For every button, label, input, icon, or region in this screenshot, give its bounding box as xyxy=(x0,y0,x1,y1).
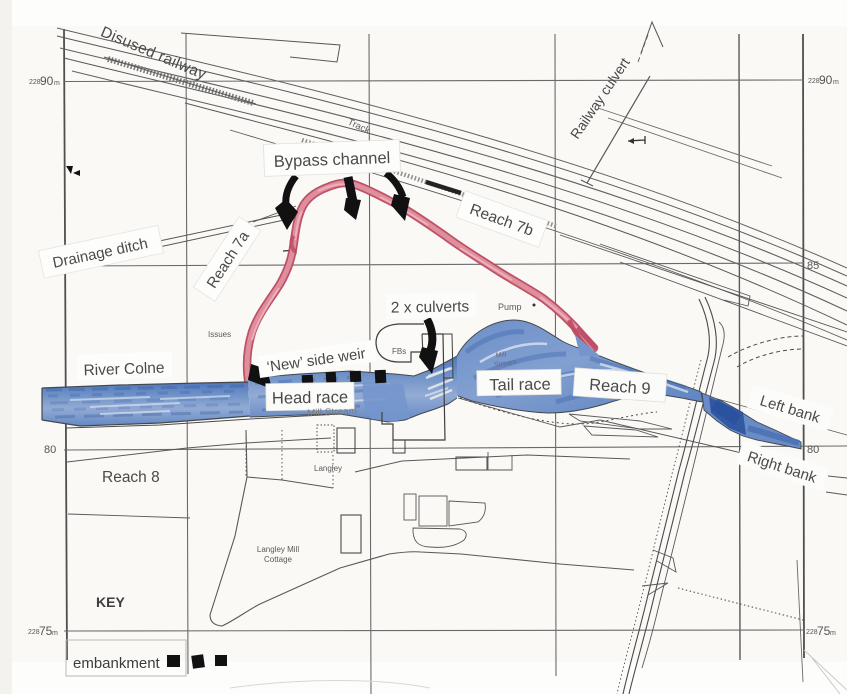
svg-text:2 x culverts: 2 x culverts xyxy=(391,298,470,316)
svg-text:Reach 8: Reach 8 xyxy=(102,469,160,486)
svg-text:KEY: KEY xyxy=(96,594,125,610)
svg-text:Tail race: Tail race xyxy=(489,375,551,394)
svg-text:embankment: embankment xyxy=(73,655,161,672)
svg-text:Cottage: Cottage xyxy=(264,555,293,564)
svg-text:m: m xyxy=(833,79,839,86)
svg-text:Head race: Head race xyxy=(272,388,348,407)
svg-text:90: 90 xyxy=(40,74,54,88)
svg-text:85: 85 xyxy=(807,260,819,272)
svg-text:m: m xyxy=(830,630,836,637)
svg-text:80: 80 xyxy=(807,444,819,456)
svg-text:Langley: Langley xyxy=(314,464,342,473)
svg-text:75: 75 xyxy=(39,624,53,638)
svg-text:75: 75 xyxy=(817,624,831,638)
svg-text:River Colne: River Colne xyxy=(83,360,165,380)
svg-text:m: m xyxy=(54,80,60,87)
svg-text:Langley Mill: Langley Mill xyxy=(257,545,299,554)
svg-text:m: m xyxy=(52,630,58,637)
svg-text:90: 90 xyxy=(819,73,833,87)
svg-text:80: 80 xyxy=(44,444,56,456)
svg-text:Issues: Issues xyxy=(208,330,231,339)
svg-text:Pump: Pump xyxy=(498,302,522,312)
svg-text:FBs: FBs xyxy=(392,347,406,356)
